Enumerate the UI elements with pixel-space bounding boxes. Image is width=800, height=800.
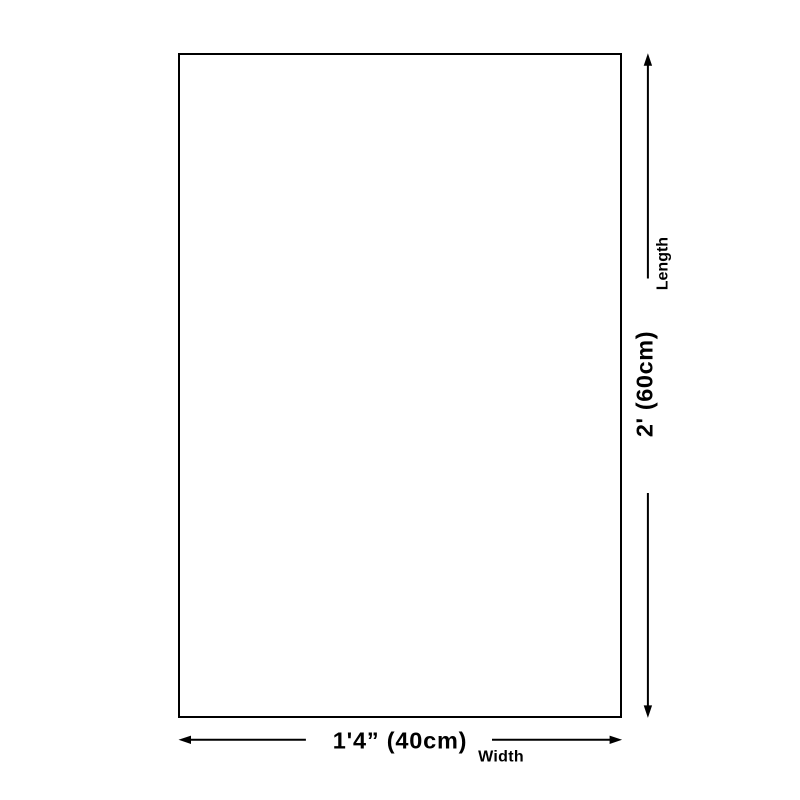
svg-text:2' (60cm): 2' (60cm)	[631, 331, 657, 437]
svg-text:Length: Length	[654, 237, 671, 290]
svg-text:Width: Width	[478, 749, 524, 766]
svg-text:1'4” (40cm): 1'4” (40cm)	[333, 728, 468, 754]
